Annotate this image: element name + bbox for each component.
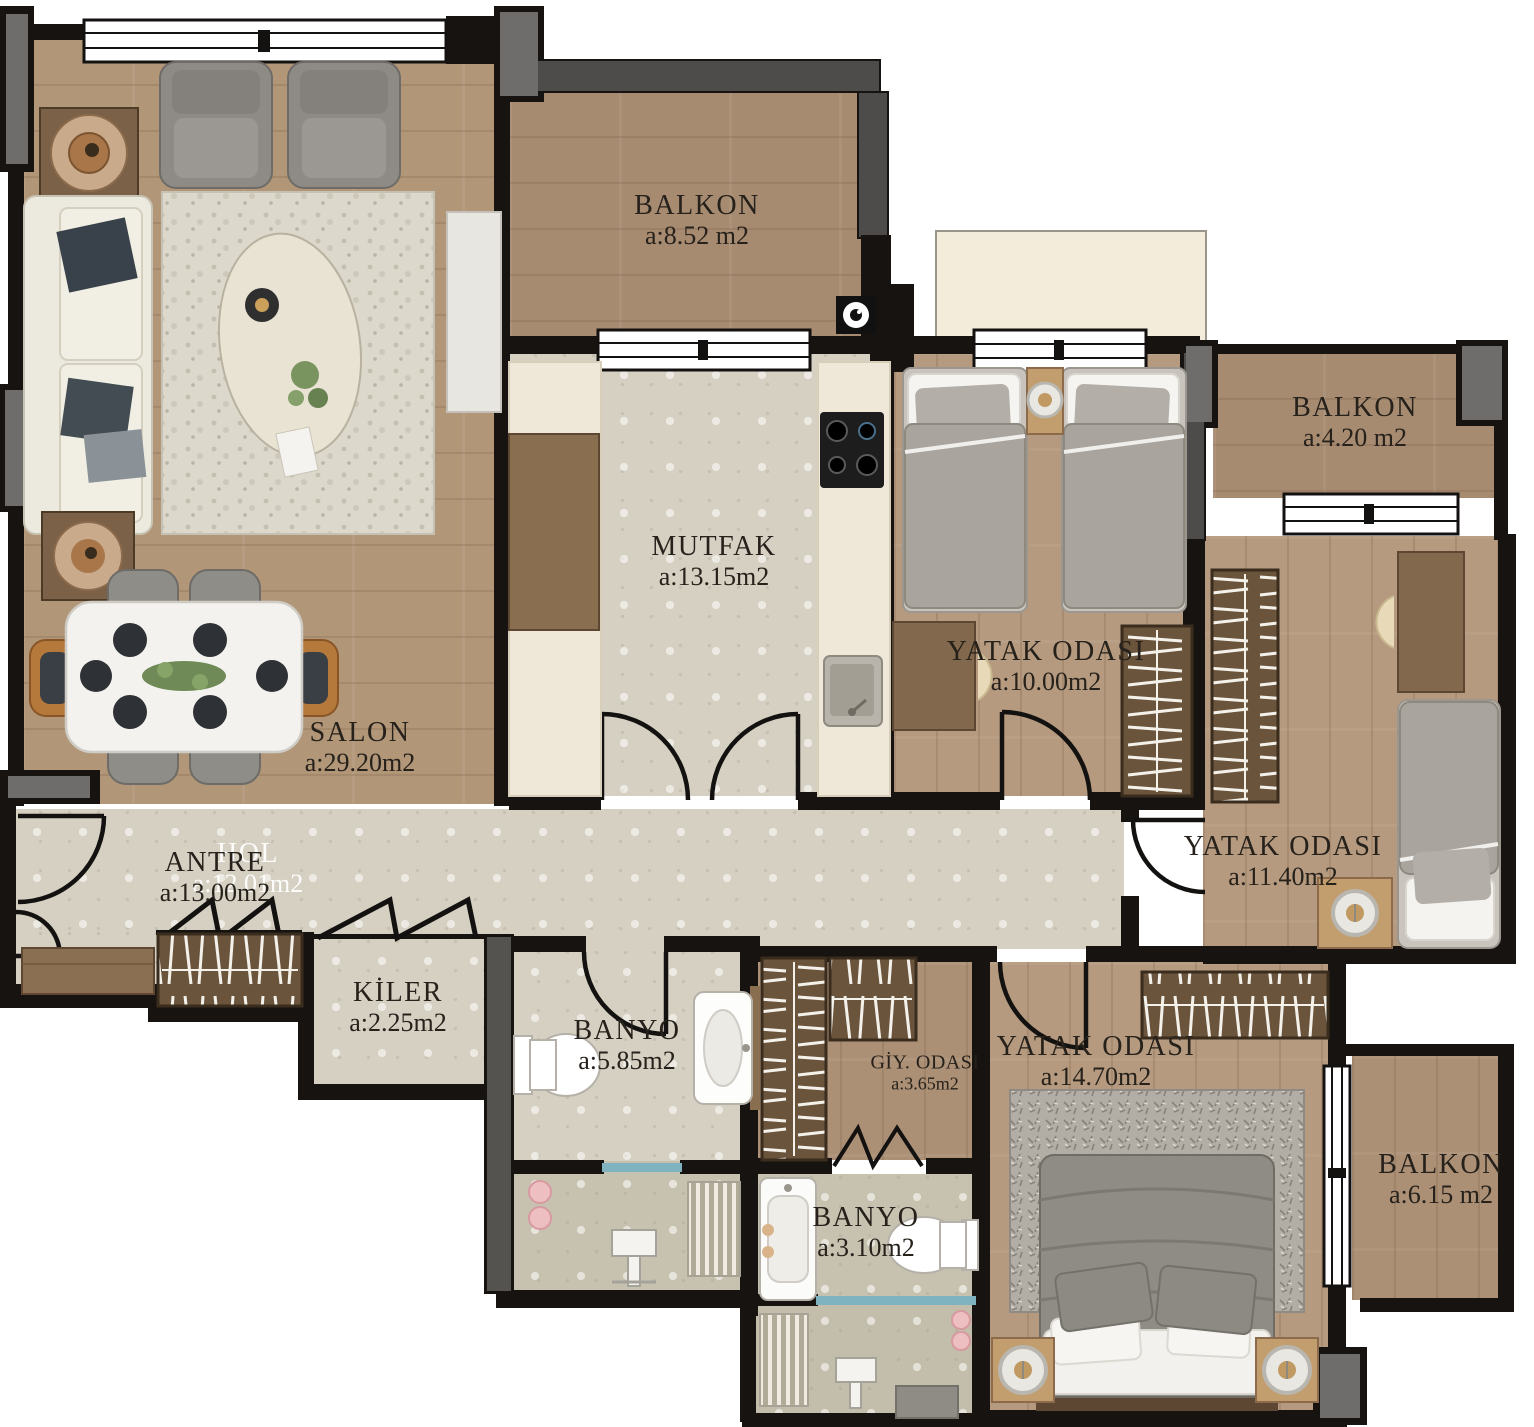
double-bed xyxy=(1036,1155,1278,1411)
bathroom-sink xyxy=(694,986,760,1110)
yatak2-window xyxy=(1284,494,1458,534)
toiletry-icon xyxy=(952,1332,970,1350)
room-label-mutfak: MUTFAKa:13.15m2 xyxy=(651,531,776,591)
nightstand-lamp xyxy=(1027,368,1063,434)
desk-chair xyxy=(1376,552,1464,692)
floor-plan: HOL a:12.01m2 SALONa:29.20m2 MUTFAKa:13.… xyxy=(0,0,1534,1427)
room-label-yatak1: YATAK ODASIa:10.00m2 xyxy=(947,636,1146,696)
floor-drain-icon xyxy=(836,296,876,334)
entrance-door xyxy=(16,816,104,956)
shower-mat xyxy=(760,1314,808,1406)
shower-fixture xyxy=(612,1230,656,1286)
twin-bed xyxy=(903,368,1027,612)
room-label-antre: ANTREa:13.00m2 xyxy=(160,847,271,907)
sofa xyxy=(24,196,152,534)
toiletry-icon xyxy=(952,1311,970,1329)
kitchen-table xyxy=(509,434,599,630)
salon-furniture xyxy=(24,62,501,784)
mutfak-window xyxy=(598,330,810,370)
toiletry-icon xyxy=(529,1181,551,1203)
room-label-yatak3: YATAK ODASIa:14.70m2 xyxy=(997,1031,1196,1091)
single-bed xyxy=(1398,700,1500,948)
room-label-yatak2: YATAK ODASIa:11.40m2 xyxy=(1184,831,1383,891)
yatak3-balkon-window xyxy=(1324,1066,1350,1286)
room-label-balkon-alt: BALKONa:6.15 m2 xyxy=(1378,1149,1504,1209)
nightstand-lamp xyxy=(992,1338,1054,1402)
cooktop xyxy=(820,412,884,488)
room-label-banyo-buyuk: BANYOa:5.85m2 xyxy=(573,1015,680,1075)
shower-fixture xyxy=(836,1358,876,1408)
armchair xyxy=(160,62,272,188)
kitchen-sink xyxy=(824,656,882,726)
yatak1-furniture xyxy=(893,368,1192,796)
shower-mat xyxy=(688,1182,740,1276)
armchair xyxy=(288,62,400,188)
room-label-banyo-kucuk: BANYOa:3.10m2 xyxy=(812,1202,919,1262)
mutfak-double-door xyxy=(602,714,798,800)
shoe-bench xyxy=(22,948,154,994)
room-label-balkon-ust: BALKONa:8.52 m2 xyxy=(634,190,760,250)
room-label-giy: GİY. ODASIa:3.65m2 xyxy=(870,1052,979,1095)
tv-console xyxy=(447,212,501,412)
room-label-kiler: KİLERa:2.25m2 xyxy=(349,977,447,1037)
bathroom-sink xyxy=(760,1178,816,1300)
twin-bed xyxy=(1062,368,1186,612)
room-label-salon: SALONa:29.20m2 xyxy=(305,717,416,777)
dining-set xyxy=(30,570,338,784)
yatak1-door xyxy=(1002,712,1090,800)
banyo-kucuk-accordion-door xyxy=(834,1128,922,1166)
nightstand-lamp xyxy=(1256,1338,1318,1402)
salon-window xyxy=(84,20,446,62)
yatak1-window xyxy=(974,330,1146,372)
toiletry-icon xyxy=(529,1207,551,1229)
side-table-lamp xyxy=(40,108,138,200)
bath-rug xyxy=(896,1386,958,1418)
room-label-balkon-sag: BALKONa:4.20 m2 xyxy=(1292,392,1418,452)
kiler-accordion-door xyxy=(318,900,476,938)
plan-linework xyxy=(0,0,1534,1427)
